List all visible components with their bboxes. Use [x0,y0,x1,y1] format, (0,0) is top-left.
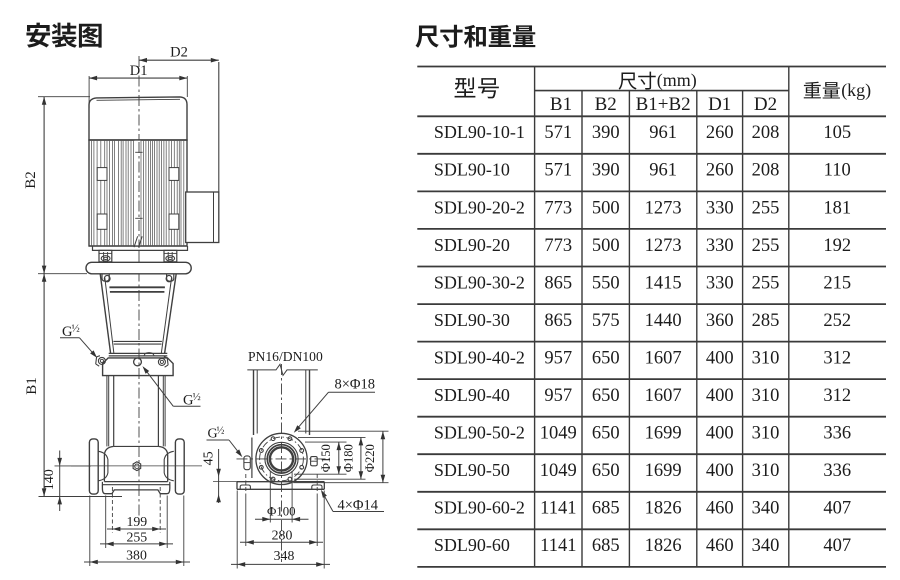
svg-text:Φ220: Φ220 [363,444,377,472]
svg-text:181: 181 [823,198,851,218]
svg-text:500: 500 [592,198,620,218]
svg-text:260: 260 [706,161,734,181]
svg-text:330: 330 [706,198,734,218]
svg-text:390: 390 [592,161,620,181]
svg-text:1699: 1699 [645,461,682,481]
svg-text:½: ½ [193,391,201,403]
svg-text:650: 650 [592,349,620,369]
svg-text:650: 650 [592,424,620,444]
svg-text:575: 575 [592,311,620,331]
svg-text:B2: B2 [595,94,617,115]
svg-text:336: 336 [823,424,851,444]
svg-text:Φ150: Φ150 [319,444,333,472]
svg-text:310: 310 [752,349,780,369]
svg-text:961: 961 [649,161,677,181]
svg-text:685: 685 [592,499,620,519]
svg-text:348: 348 [274,548,295,563]
svg-text:Φ100: Φ100 [267,505,296,519]
svg-text:(kg): (kg) [841,80,871,101]
svg-text:½: ½ [217,425,225,436]
svg-text:½: ½ [72,323,80,335]
svg-text:B1+B2: B1+B2 [636,94,691,115]
svg-text:215: 215 [823,273,851,293]
svg-text:SDL90-40: SDL90-40 [434,385,510,405]
svg-text:571: 571 [544,161,572,181]
svg-text:400: 400 [706,424,734,444]
svg-text:D2: D2 [170,45,188,61]
svg-text:312: 312 [823,386,851,406]
svg-text:1607: 1607 [645,349,682,369]
svg-text:957: 957 [544,386,572,406]
svg-text:SDL90-10-1: SDL90-10-1 [434,122,525,142]
svg-text:SDL90-60: SDL90-60 [434,535,510,555]
svg-text:192: 192 [823,236,851,256]
svg-text:110: 110 [824,161,851,181]
svg-text:407: 407 [823,499,851,519]
svg-text:255: 255 [752,273,780,293]
svg-text:1699: 1699 [645,424,682,444]
svg-text:D2: D2 [754,94,777,115]
svg-text:SDL90-20-2: SDL90-20-2 [434,197,525,217]
svg-text:B1: B1 [550,94,572,115]
svg-text:773: 773 [544,236,572,256]
svg-text:1273: 1273 [645,198,682,218]
svg-text:1049: 1049 [540,424,577,444]
svg-text:280: 280 [272,527,293,542]
svg-text:255: 255 [126,529,147,544]
svg-text:340: 340 [752,536,780,556]
svg-text:208: 208 [752,161,780,181]
svg-text:1826: 1826 [645,499,682,519]
svg-text:310: 310 [752,424,780,444]
svg-text:1049: 1049 [540,461,577,481]
svg-text:330: 330 [706,236,734,256]
svg-text:255: 255 [752,236,780,256]
svg-text:310: 310 [752,461,780,481]
svg-text:310: 310 [752,386,780,406]
svg-text:650: 650 [592,386,620,406]
svg-text:D1: D1 [708,94,731,115]
svg-text:650: 650 [592,461,620,481]
svg-text:SDL90-30: SDL90-30 [434,310,510,330]
svg-text:1273: 1273 [645,236,682,256]
svg-text:500: 500 [592,236,620,256]
svg-text:252: 252 [823,311,851,331]
svg-text:400: 400 [706,461,734,481]
svg-text:1141: 1141 [540,499,576,519]
svg-text:773: 773 [544,198,572,218]
svg-text:D1: D1 [130,63,148,79]
svg-text:SDL90-10: SDL90-10 [434,160,510,180]
svg-text:380: 380 [126,548,147,563]
svg-text:460: 460 [706,536,734,556]
svg-text:340: 340 [752,499,780,519]
svg-text:1440: 1440 [645,311,682,331]
svg-text:1826: 1826 [645,536,682,556]
svg-text:400: 400 [706,386,734,406]
svg-text:B2: B2 [23,171,39,189]
svg-text:208: 208 [752,123,780,143]
svg-text:865: 865 [544,273,572,293]
svg-text:390: 390 [592,123,620,143]
svg-text:B1: B1 [24,377,40,395]
svg-text:SDL90-50: SDL90-50 [434,460,510,480]
svg-text:255: 255 [752,198,780,218]
svg-text:460: 460 [706,499,734,519]
svg-text:SDL90-20: SDL90-20 [434,235,510,255]
svg-text:45: 45 [201,451,216,465]
svg-text:(mm): (mm) [657,70,697,91]
svg-text:8×Φ18: 8×Φ18 [335,377,376,393]
svg-text:360: 360 [706,311,734,331]
svg-text:SDL90-50-2: SDL90-50-2 [434,423,525,443]
svg-text:105: 105 [823,123,851,143]
svg-text:285: 285 [752,311,780,331]
svg-text:961: 961 [649,123,677,143]
svg-text:SDL90-40-2: SDL90-40-2 [434,348,525,368]
svg-text:SDL90-30-2: SDL90-30-2 [434,272,525,292]
svg-text:1607: 1607 [645,386,682,406]
svg-text:199: 199 [126,514,147,529]
svg-text:312: 312 [823,349,851,369]
svg-text:957: 957 [544,349,572,369]
svg-text:336: 336 [823,461,851,481]
svg-text:550: 550 [592,273,620,293]
svg-text:400: 400 [706,349,734,369]
svg-text:571: 571 [544,123,572,143]
svg-text:260: 260 [706,123,734,143]
svg-text:1141: 1141 [540,536,576,556]
svg-text:330: 330 [706,273,734,293]
svg-text:Φ180: Φ180 [341,444,355,472]
svg-text:PN16/DN100: PN16/DN100 [248,349,323,364]
svg-text:407: 407 [823,536,851,556]
svg-text:685: 685 [592,536,620,556]
svg-text:SDL90-60-2: SDL90-60-2 [434,498,525,518]
svg-text:1415: 1415 [645,273,682,293]
svg-text:865: 865 [544,311,572,331]
